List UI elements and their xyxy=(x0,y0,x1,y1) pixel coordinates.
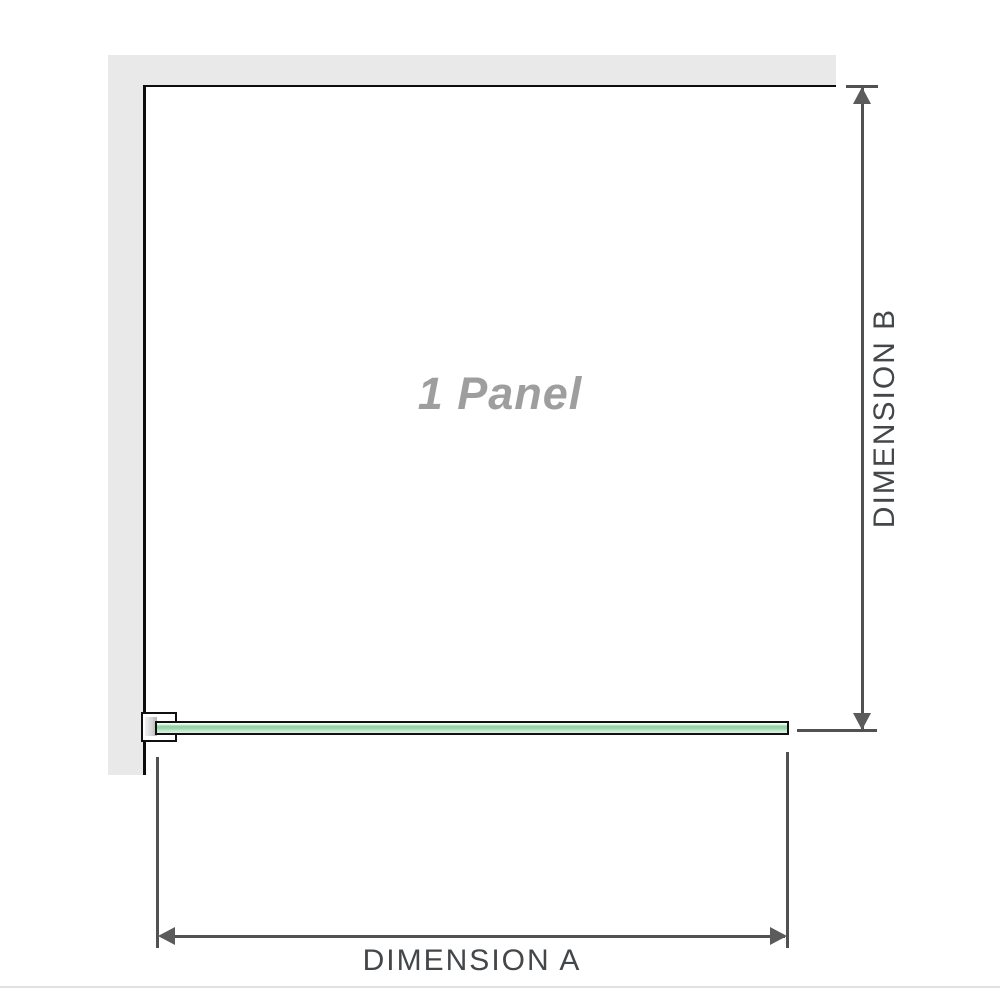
wall-left-strip xyxy=(108,55,143,775)
arrow-up-icon xyxy=(853,87,871,104)
panel-count-label: 1 Panel xyxy=(300,368,700,420)
dimension-b-line xyxy=(861,88,864,730)
panel-outline-top xyxy=(143,85,836,88)
panel-dimension-diagram: 1 Panel DIMENSION B DIMENSION A xyxy=(0,0,1000,1000)
dimension-b-label: DIMENSION B xyxy=(868,268,900,568)
arrow-right-icon xyxy=(770,927,787,945)
panel-outline-left xyxy=(143,85,146,775)
arrow-down-icon xyxy=(853,713,871,730)
dimension-a-right-extension xyxy=(786,752,789,948)
bottom-divider xyxy=(0,986,1000,988)
glass-panel-bar xyxy=(155,721,789,735)
dimension-a-left-extension xyxy=(156,757,159,948)
dimension-a-line xyxy=(161,935,785,938)
arrow-left-icon xyxy=(158,927,175,945)
dimension-a-label: DIMENSION A xyxy=(157,944,787,978)
wall-top-strip xyxy=(108,55,836,86)
